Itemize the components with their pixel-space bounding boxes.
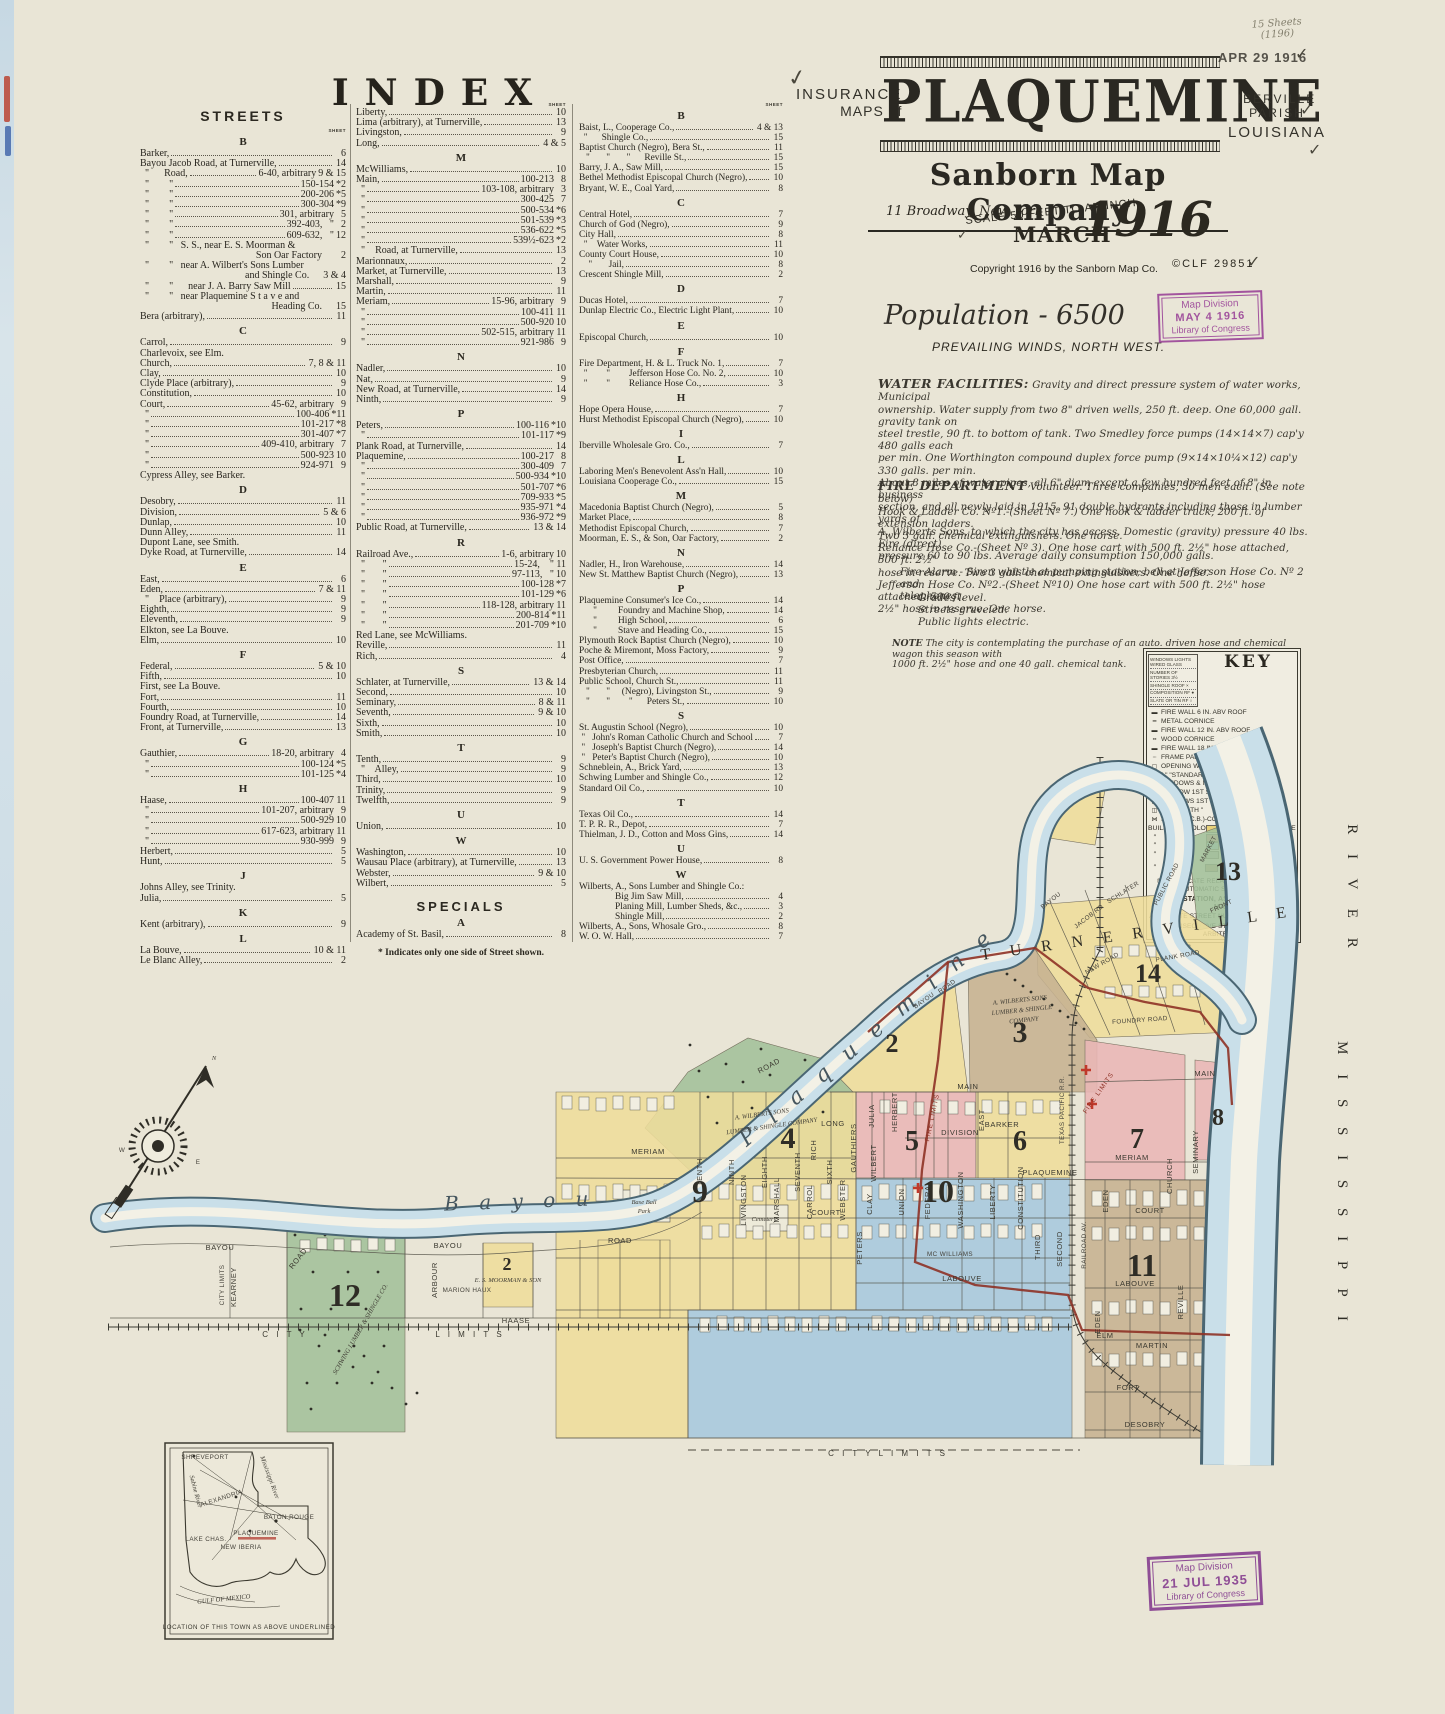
map-label: MAIN: [957, 1082, 978, 1091]
town-underline: [238, 1537, 276, 1540]
map-label: 12: [329, 1277, 361, 1313]
map-label: PLAQUEMINE: [1022, 1168, 1077, 1177]
map-label: MAIN: [1194, 1069, 1215, 1078]
map-label: CITY LIMITS: [219, 1265, 226, 1306]
map-label: CONSTITUTION: [1016, 1166, 1025, 1229]
map-label: EAST: [977, 1109, 986, 1131]
map-label: BAYOU: [434, 1241, 463, 1250]
map-label: LABOUVE: [942, 1274, 982, 1283]
map-label: TENTH: [695, 1158, 704, 1186]
map-label: MARTIN: [1136, 1341, 1168, 1350]
map-label: Park: [637, 1208, 651, 1215]
map-label: 7: [1130, 1124, 1144, 1155]
map-label: LOCATION OF THIS TOWN AS ABOVE UNDERLINE…: [163, 1624, 335, 1631]
map-label: PLAQUEMINE: [233, 1530, 278, 1537]
map-label: EDEN: [1101, 1189, 1110, 1212]
map-label: WEBSTER: [838, 1179, 847, 1220]
map-label: MERIAM: [1115, 1153, 1149, 1162]
map-label: MARION HAUX: [443, 1287, 492, 1294]
map-label: ARBOUR: [430, 1262, 439, 1298]
map-label: 11: [1127, 1247, 1157, 1283]
map-label: SIXTH: [825, 1159, 834, 1184]
map-label: C I T Y: [262, 1330, 307, 1339]
map-label: LIBERTY: [988, 1184, 997, 1219]
map-label: DESOBRY: [1125, 1420, 1166, 1429]
map-label: Cemetery: [752, 1216, 777, 1223]
map-label: BAYOU: [206, 1243, 235, 1252]
map-label: 8: [1212, 1105, 1224, 1131]
map-label: UNION: [897, 1188, 906, 1215]
mississippi-river: [1228, 740, 1262, 1465]
map-label: WASHINGTON: [956, 1171, 965, 1228]
map-label: N: [211, 1055, 217, 1062]
map-label: HERBERT: [890, 1092, 899, 1132]
map-label: BATON ROUGE: [264, 1514, 314, 1521]
map-label: SEVENTH: [793, 1152, 802, 1192]
map-label: Base Ball: [631, 1199, 656, 1206]
map-label: CHURCH: [1165, 1158, 1174, 1194]
map-label: R I V E R: [1344, 824, 1360, 955]
map-label: E. S. MOORMAN & SON: [474, 1277, 542, 1284]
map-label: WILBERT: [869, 1144, 878, 1181]
map-label: W: [119, 1147, 125, 1154]
map-label: CLAY: [865, 1193, 874, 1214]
map-label: EDEN: [1093, 1310, 1102, 1333]
map-label: RAILROAD AV.: [1081, 1221, 1088, 1269]
map-label: LONG: [821, 1119, 845, 1128]
map-label: CARROL: [805, 1185, 814, 1220]
map-label: FORT: [1117, 1383, 1140, 1392]
map-label: SHREVEPORT: [181, 1454, 228, 1461]
map-label: MERIAM: [631, 1147, 665, 1156]
map-label: LABOUVE: [1115, 1279, 1155, 1288]
compass-rose: [105, 1066, 214, 1219]
map-label: ROAD: [608, 1236, 632, 1245]
map-label: COURT: [811, 1208, 841, 1217]
map-label: LIVINGSTON: [739, 1174, 748, 1225]
map-label: SECOND: [1055, 1231, 1064, 1267]
map-label: E: [196, 1159, 201, 1166]
map-label: NINTH: [727, 1159, 736, 1185]
sanborn-map-sheet: INDEX STREETS SHEET BBarker,6Bayou Jacob…: [0, 0, 1445, 1714]
map-label: REVILLE: [1176, 1284, 1185, 1319]
map-label: M I S S I S S I P P I: [1334, 1041, 1350, 1329]
map-label: JULIA: [867, 1104, 876, 1127]
map-label: BARKER: [985, 1120, 1019, 1129]
map-label: PETERS: [855, 1231, 864, 1265]
map-label: 5: [905, 1126, 919, 1157]
map-label: NEW IBERIA: [220, 1544, 261, 1551]
map-label: 2: [503, 1254, 512, 1274]
map-label: LAKE CHAS.: [185, 1536, 226, 1543]
map-label: DIVISION: [941, 1128, 979, 1137]
map-label: C I T Y L I M I T S: [828, 1449, 948, 1458]
map-label: GAUTHIERS: [849, 1123, 858, 1172]
map-label: TEXAS PACIFIC R.R.: [1059, 1076, 1066, 1144]
library-of-congress-stamp-1935: Map Division 21 JUL 1935 Library of Cong…: [1147, 1551, 1264, 1611]
map-label: RICH: [809, 1140, 818, 1161]
map-label: L I M I T S: [435, 1330, 504, 1339]
map-label: 6: [1013, 1126, 1027, 1157]
map-label: SEMINARY: [1191, 1130, 1200, 1174]
city-map: 2345678910111213142B a y o uP l a q u e …: [0, 0, 1445, 1714]
map-label: KEARNEY: [229, 1267, 238, 1307]
map-label: MC WILLIAMS: [927, 1251, 973, 1258]
map-label: HAASE: [502, 1316, 530, 1325]
map-label: THIRD: [1033, 1234, 1042, 1260]
map-label: FEDERAL: [923, 1181, 932, 1220]
map-label: 13: [1215, 857, 1241, 886]
map-label: COURT: [1135, 1206, 1165, 1215]
map-label: EIGHTH: [760, 1156, 769, 1188]
